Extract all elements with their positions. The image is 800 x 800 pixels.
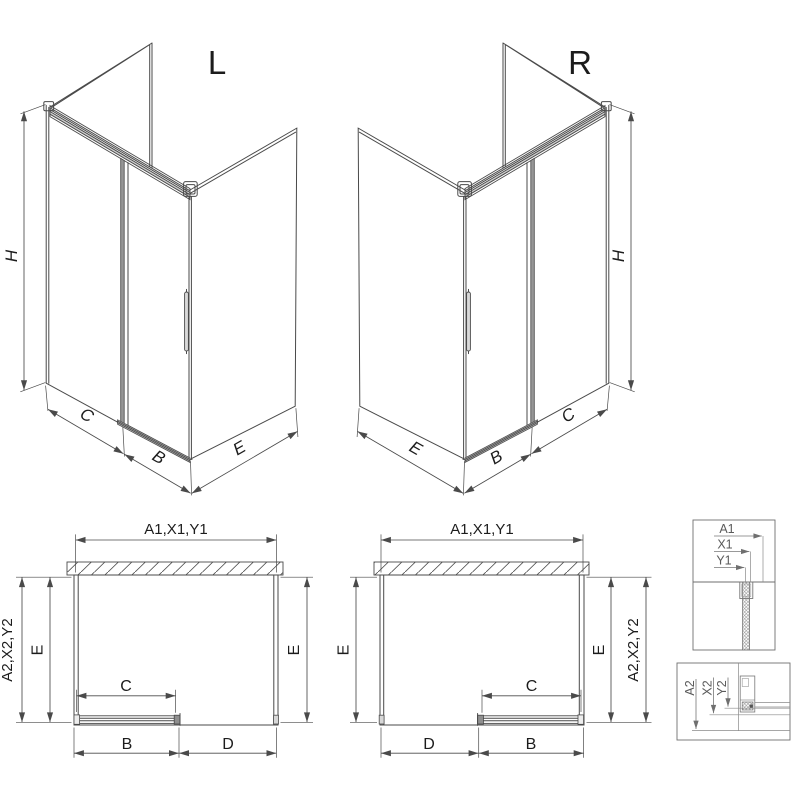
iso-left-dim-e: E: [230, 437, 250, 459]
plan-view-left: A1,X1,Y1 A2,X2,Y2 E E C B D: [0, 521, 313, 758]
technical-drawing-sheet: L H C B E R H C B E: [0, 0, 800, 800]
detail-label-y1: Y1: [716, 554, 731, 568]
detail-label-a2: A2: [683, 680, 697, 695]
fixed-glass-end-block: [379, 715, 384, 724]
plan-left-dim-d: D: [222, 736, 234, 753]
side-wall-glass-lines: [384, 575, 580, 725]
iso-right-dim-b: B: [486, 446, 505, 468]
plan-left-dim-right: E: [286, 645, 303, 656]
iso-view-right: R H C B E: [357, 43, 635, 495]
plan-left-dim-outer-left: A2,X2,Y2: [0, 618, 16, 681]
reference-lines: [746, 536, 763, 582]
plan-left-dim-inner-left: E: [30, 645, 47, 656]
wall-hatch-strip: [67, 562, 283, 575]
plan-right-dim-b: B: [526, 736, 537, 753]
door-edge-block: [478, 715, 484, 724]
shower-enclosure-drawing: L H C B E R H C B E: [0, 0, 800, 800]
track-end-cap: [578, 715, 584, 724]
iso-view-left: L H C B E: [2, 43, 298, 495]
fixed-glass-end-block: [274, 715, 279, 724]
iso-left-dim-c: C: [77, 404, 98, 427]
plan-right-dim-inner-right: E: [591, 645, 608, 656]
detail-view-top: A1 X1 Y1: [693, 520, 775, 650]
detail-frame: [677, 663, 790, 740]
iso-right-dim-e: E: [406, 437, 426, 459]
detail-label-y2: Y2: [715, 680, 729, 695]
plan-left-dim-top: A1,X1,Y1: [144, 521, 207, 538]
detail-view-bottom: A2 X2 Y2: [677, 663, 790, 740]
door-track: [74, 716, 180, 724]
plan-right-dim-c: C: [526, 678, 538, 695]
iso-right-geometry: [357, 43, 635, 495]
detail-label-x2: X2: [701, 680, 715, 695]
reference-lines: [692, 708, 790, 730]
rail-projection-lines: [755, 702, 790, 707]
iso-right-title: R: [568, 44, 592, 81]
door-edge-block: [174, 715, 180, 724]
plan-right-dim-left: E: [336, 645, 353, 656]
detail-label-x1: X1: [717, 538, 732, 552]
iso-right-dim-h: H: [609, 249, 628, 262]
enclosure-outline: [74, 575, 278, 725]
plan-left-dim-b: B: [122, 736, 133, 753]
plan-view-right: A1,X1,Y1 E E A2,X2,Y2 C D B: [336, 521, 652, 758]
glass-section: [743, 582, 750, 650]
plan-right-dim-d: D: [423, 736, 435, 753]
left-extension-lines: [350, 577, 377, 722]
plan-right-dim-top: A1,X1,Y1: [450, 521, 513, 538]
iso-left-geometry: [20, 43, 298, 495]
iso-right-dim-c: C: [558, 404, 579, 427]
plan-left-dim-c: C: [120, 678, 132, 695]
iso-left-title: L: [208, 44, 226, 81]
track-end-cap: [74, 715, 80, 724]
iso-left-dim-b: B: [149, 446, 168, 468]
wall-hatch-strip: [374, 562, 589, 575]
detail-label-a1: A1: [719, 522, 734, 536]
plan-right-dim-outer-right: A2,X2,Y2: [625, 618, 642, 681]
side-wall-glass-lines: [78, 575, 274, 725]
door-track: [478, 716, 584, 724]
rail-section-inner: [742, 679, 748, 687]
iso-left-dim-h: H: [2, 249, 21, 262]
roller-dot: [750, 705, 753, 708]
